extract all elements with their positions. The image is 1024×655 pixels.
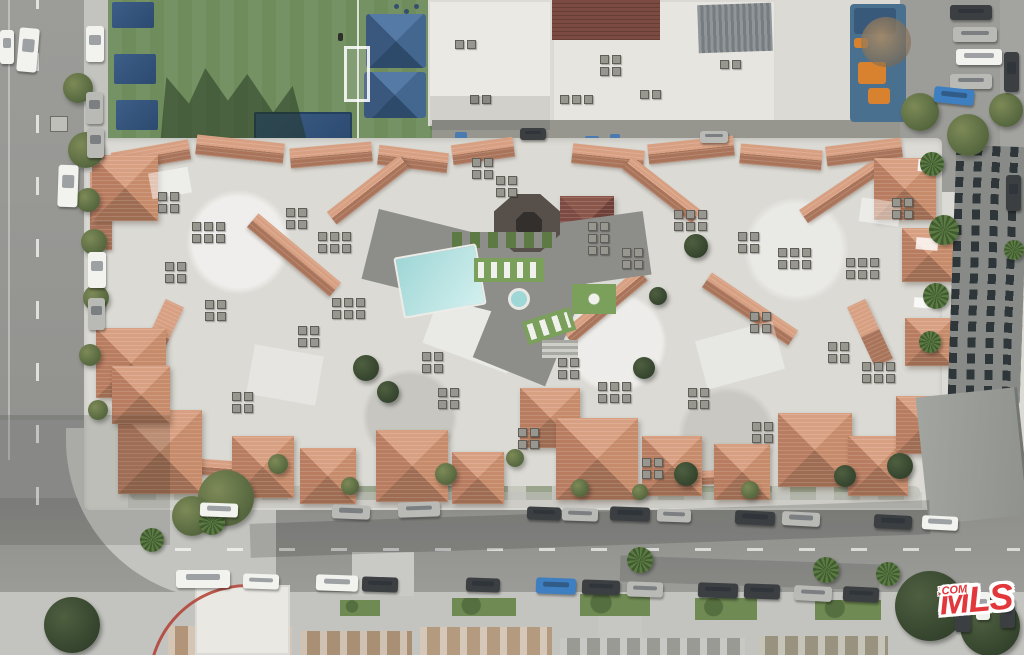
lane-edge-line [8, 0, 10, 460]
person [394, 4, 399, 9]
red-curb-arc [148, 584, 258, 655]
courtyard-steps [542, 340, 578, 358]
parkway-grass [340, 600, 380, 616]
play-structure [858, 62, 886, 84]
person [338, 33, 343, 41]
front-walkway [128, 492, 922, 508]
playground-canopy [854, 8, 896, 34]
play-structure [868, 88, 890, 104]
mls-logo-com: .COM [938, 585, 971, 597]
red-curb [140, 578, 258, 655]
playground [850, 4, 906, 122]
lane-marking-vertical [36, 0, 39, 505]
field-tent [364, 72, 426, 118]
townhouse-roof [420, 627, 552, 655]
person [404, 9, 409, 14]
gray-building-roof [916, 387, 1024, 525]
spa-tub [508, 288, 530, 310]
parkway-grass [695, 598, 757, 620]
aerial-photo: THE MLS™ .COM [0, 0, 1024, 655]
highrise-building [948, 145, 1024, 403]
lounge-chair-area [474, 258, 544, 282]
brick-roof [552, 0, 660, 40]
townhouse-roof [560, 638, 745, 655]
person [414, 4, 419, 9]
field-canopy [116, 100, 158, 130]
driveway [352, 552, 414, 596]
field-canopy [114, 54, 156, 84]
parkway-grass [580, 594, 650, 616]
patio-table-area [572, 284, 616, 314]
soccer-field [108, 0, 432, 148]
parkway-grass [452, 598, 516, 616]
field-canopy [112, 2, 154, 28]
townhouse-roof [758, 636, 888, 655]
townhouse-roof [300, 631, 412, 655]
play-structure [854, 38, 868, 48]
metal-roof [697, 3, 773, 54]
field-line [357, 0, 359, 148]
field-tent [366, 14, 426, 68]
commercial-rooftop [428, 0, 552, 126]
lane-marking-horizontal [175, 548, 1020, 551]
traffic-signal [50, 116, 68, 132]
parkway-grass [815, 600, 881, 620]
